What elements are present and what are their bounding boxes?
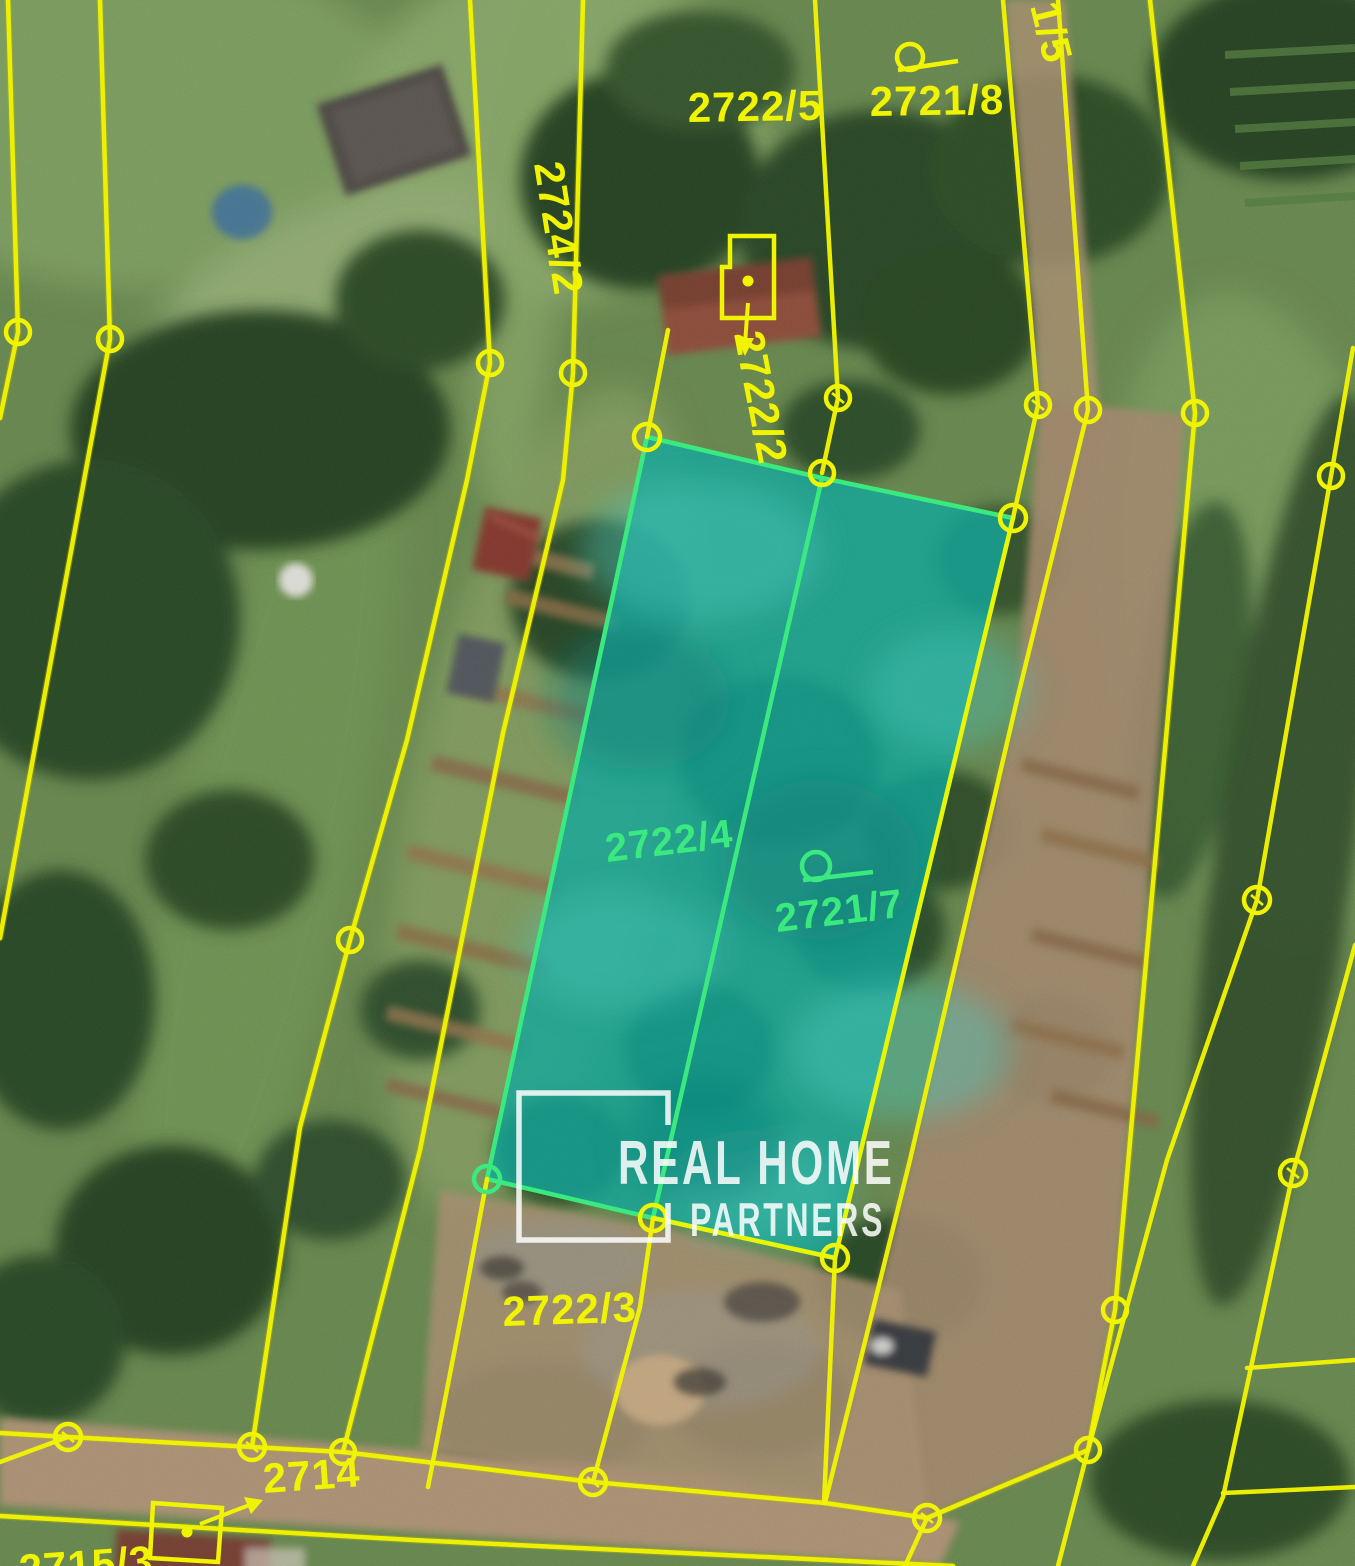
- parcel-label-2722-3: 2722/3: [502, 1283, 638, 1335]
- building-point-dot: [743, 276, 754, 287]
- watermark-line2: PARTNERS: [690, 1194, 885, 1247]
- parcel-label-2721-8: 2721/8: [869, 76, 1004, 125]
- building-point-dot: [182, 1527, 193, 1538]
- parcel-label-2714: 2714: [261, 1448, 361, 1502]
- parcel-label-2722-5: 2722/5: [687, 82, 822, 131]
- cadastral-map-canvas[interactable]: 2722/5 2721/8 1/5 2724/2 2722/2 2722/4 2…: [0, 0, 1355, 1566]
- watermark-line1: REAL HOME: [618, 1129, 895, 1198]
